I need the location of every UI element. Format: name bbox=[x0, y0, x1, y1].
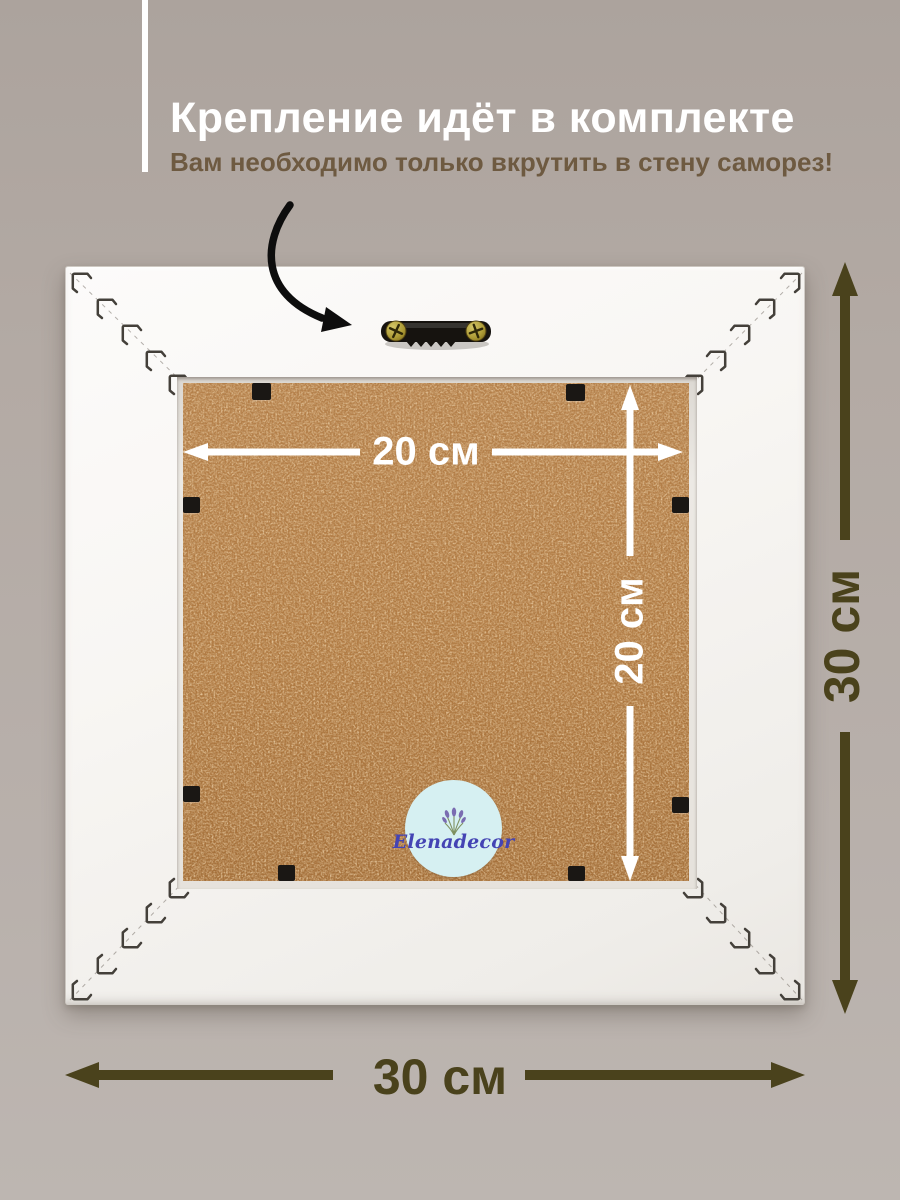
miter-staples-bottom-right-icon bbox=[674, 871, 806, 1006]
flexi-clip-bottom-left bbox=[278, 865, 295, 881]
frame-back-panel: Elenadecor bbox=[183, 383, 689, 881]
flexi-clip-left-upper bbox=[183, 497, 200, 513]
outer-height-label: 30 см bbox=[813, 569, 871, 703]
miter-staples-bottom-left-icon bbox=[66, 871, 201, 1006]
flexi-clip-top-left bbox=[252, 383, 271, 400]
panel-recess: Elenadecor bbox=[177, 377, 697, 889]
flexi-clip-right-lower bbox=[672, 797, 689, 813]
flexi-clip-top-right bbox=[566, 384, 585, 401]
brand-name: Elenadecor bbox=[393, 831, 515, 853]
product-image: Крепление идёт в комплекте Вам необходим… bbox=[0, 0, 900, 1200]
flexi-clip-bottom-right bbox=[568, 866, 585, 881]
outer-width-label: 30 см bbox=[373, 1048, 507, 1106]
page-title: Крепление идёт в комплекте bbox=[170, 94, 870, 143]
brand-logo: Elenadecor bbox=[405, 780, 502, 877]
accent-bar bbox=[142, 0, 148, 172]
flexi-clip-right-upper bbox=[672, 497, 689, 513]
picture-frame-back: Elenadecor bbox=[65, 266, 805, 1005]
page-subtitle: Вам необходимо только вкрутить в стену с… bbox=[170, 147, 870, 178]
sawtooth-hanger-icon bbox=[380, 314, 494, 354]
flexi-clip-left-lower bbox=[183, 786, 200, 802]
